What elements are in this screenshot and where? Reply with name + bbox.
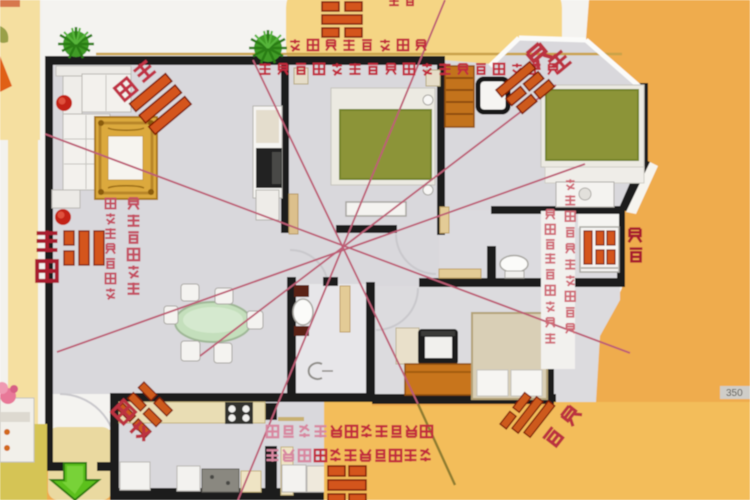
svg-text:350: 350 [726,388,743,399]
